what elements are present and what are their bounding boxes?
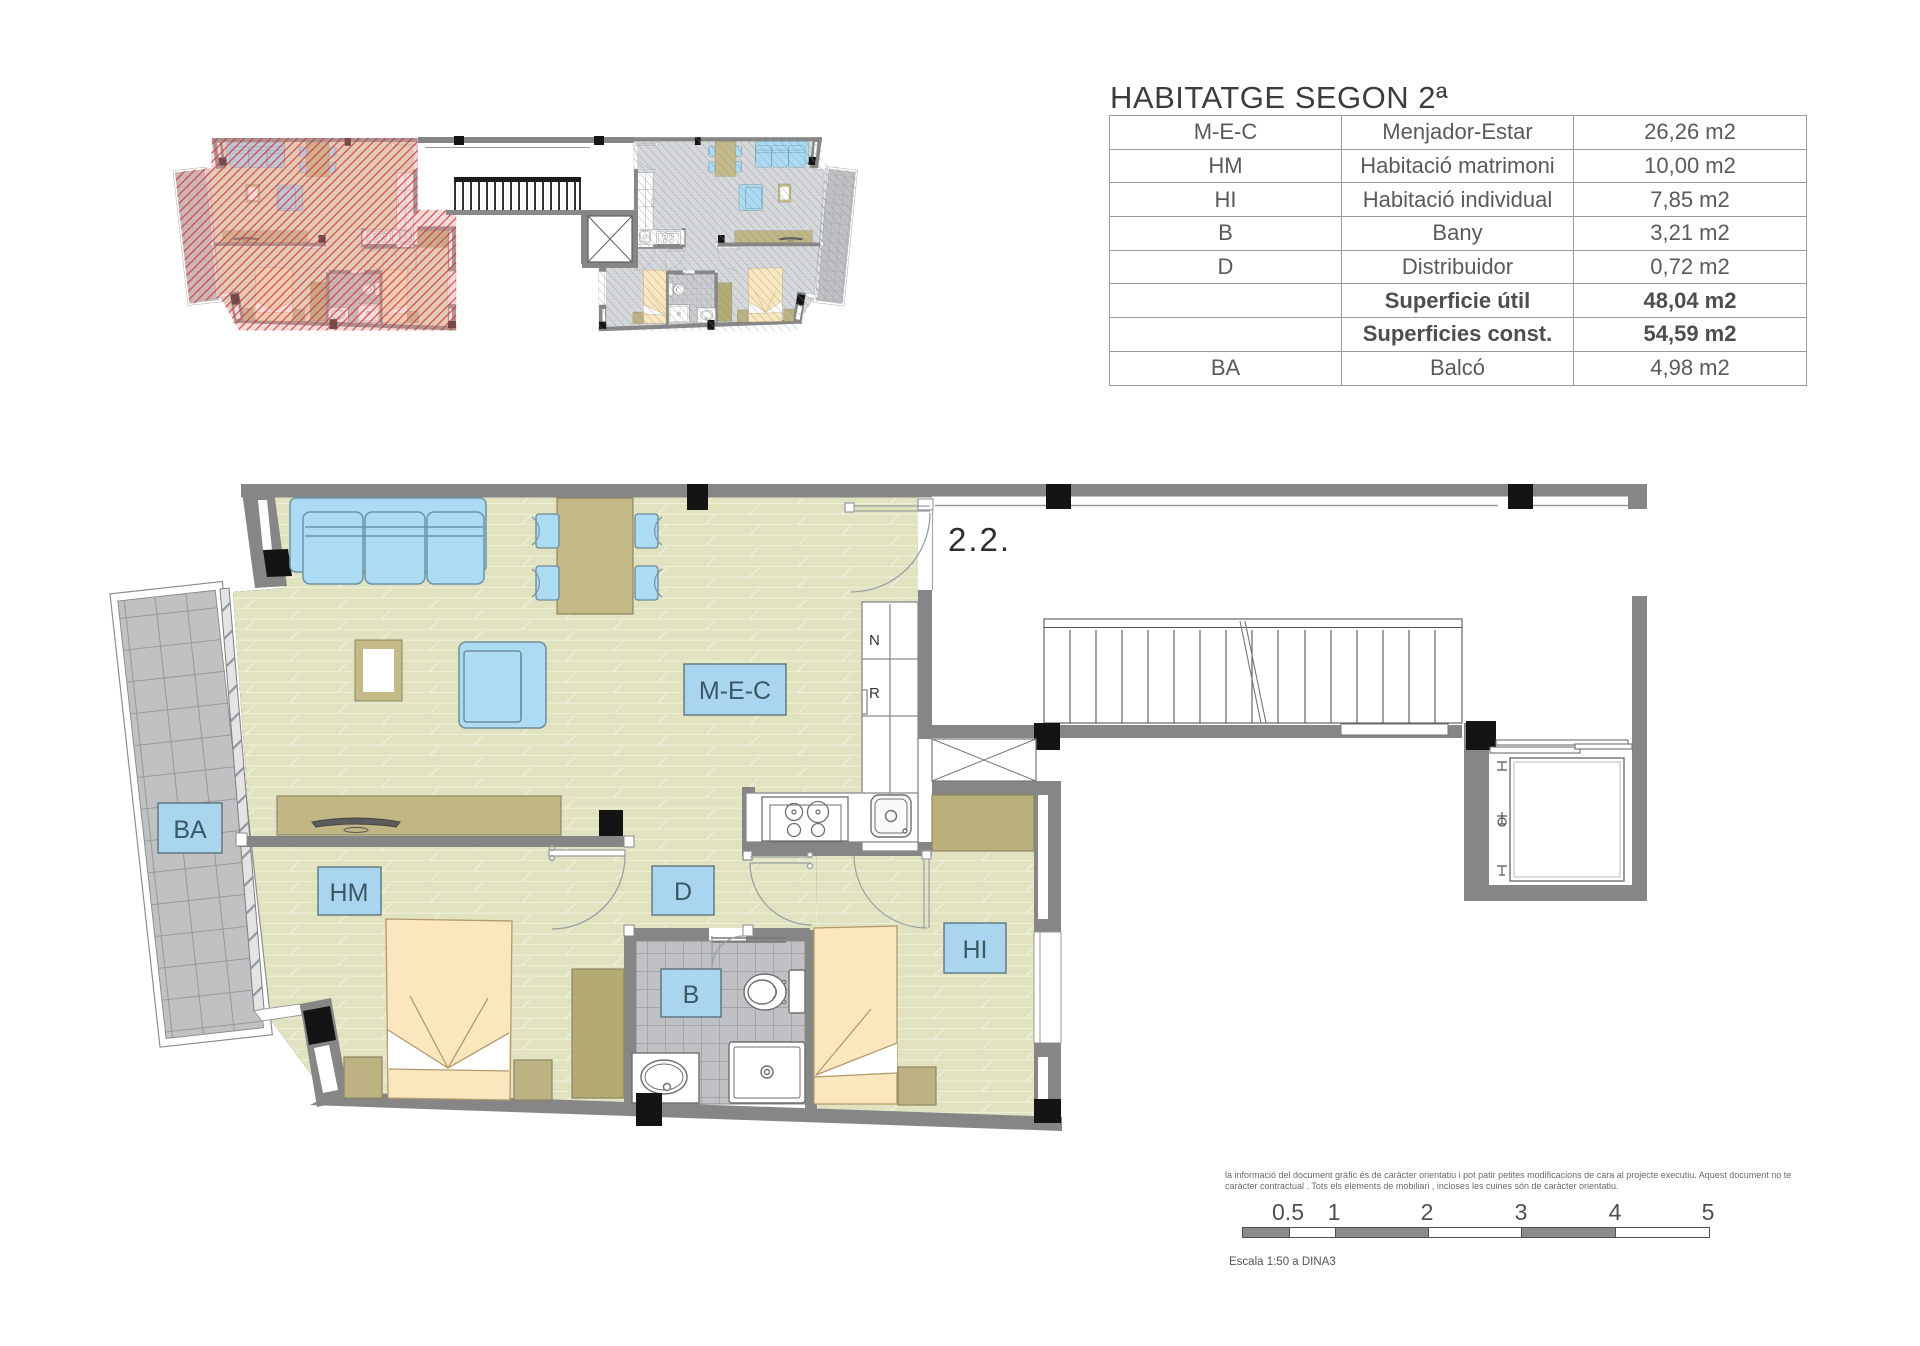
svg-text:B: B <box>683 981 700 1009</box>
svg-text:N: N <box>869 632 880 649</box>
svg-text:R: R <box>869 685 880 702</box>
svg-text:2.2.: 2.2. <box>948 521 1011 558</box>
svg-text:HM: HM <box>330 879 369 907</box>
svg-text:HI: HI <box>963 936 988 964</box>
svg-text:M-E-C: M-E-C <box>699 677 771 705</box>
svg-text:D: D <box>674 878 692 906</box>
svg-text:BA: BA <box>173 816 207 844</box>
